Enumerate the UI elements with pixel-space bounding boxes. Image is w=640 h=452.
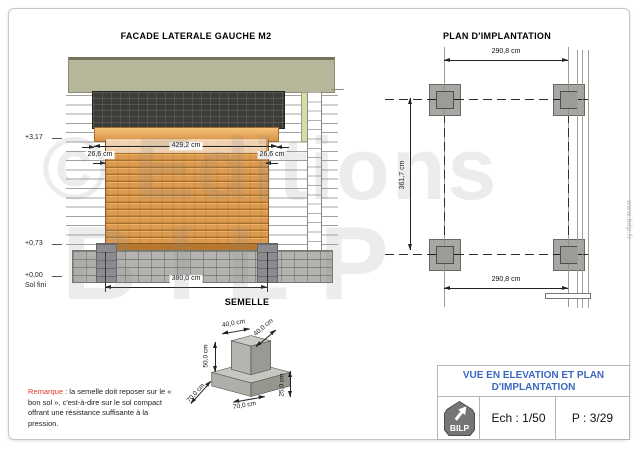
level-label-zero: +0,00	[25, 272, 43, 279]
dim-arrow-pier-height	[215, 342, 216, 372]
dim-label-overhang-right: 26,6 cm	[258, 151, 287, 159]
footing-pier-outline	[560, 91, 578, 109]
remark-label: Remarque	[28, 387, 63, 396]
footing-pad-top-left	[429, 84, 461, 116]
bilp-logo-text: BILP	[450, 423, 470, 433]
corner-post	[307, 92, 322, 250]
level-label-solfini: Sol fini	[25, 282, 46, 289]
wall-end-cap	[545, 293, 591, 299]
level-label-top: +3,17	[25, 134, 43, 141]
dim-label-plan-left: 361,7 cm	[399, 159, 407, 192]
level-tick	[52, 276, 62, 277]
titleblock-page-number: P : 3/29	[555, 396, 630, 440]
roof-panel	[68, 57, 335, 93]
footing-pier-outline	[436, 246, 454, 264]
titleblock-logo-cell: BILP	[437, 396, 482, 440]
dim-label-429: 429,2 cm	[170, 142, 203, 150]
existing-wall-line	[577, 50, 578, 308]
dim-label-pier-height: 50,0 cm	[203, 344, 210, 367]
dim-arrow	[277, 147, 289, 148]
dim-label-base-height: 25,0 cm	[279, 373, 286, 396]
footing-pier-outline	[436, 91, 454, 109]
dim-label-overhang-left: 26,6 cm	[86, 151, 115, 159]
dim-arrow-base-height	[290, 371, 291, 397]
titleblock-title-line2: D'IMPLANTATION	[492, 382, 576, 395]
titleblock-title-line1: VUE EN ELEVATION ET PLAN	[463, 370, 604, 383]
level-label-mid: +0,73	[25, 240, 43, 247]
dim-line-380	[105, 287, 267, 288]
level-tick	[52, 244, 62, 245]
footing-pier-outline	[560, 246, 578, 264]
drawing-sheet: FACADE LATERALE GAUCHE M2 429,2 cm 26,6 …	[0, 0, 640, 452]
dim-label-380: 380,0 cm	[170, 275, 203, 283]
titleblock-scale: Ech : 1/50	[479, 396, 558, 440]
centerline-vertical-dashed	[568, 114, 569, 239]
extension-line	[267, 252, 268, 292]
dim-arrow	[266, 163, 278, 164]
dim-line-plan-left	[410, 98, 411, 250]
shingle-band	[92, 91, 285, 129]
remark-note: Remarque : la semelle doit reposer sur l…	[28, 387, 180, 429]
semelle-title: SEMELLE	[197, 297, 297, 307]
level-tick	[52, 138, 62, 139]
dim-line-plan-top	[444, 60, 568, 61]
facade-title: FACADE LATERALE GAUCHE M2	[76, 31, 316, 41]
dim-label-plan-bottom: 290,8 cm	[490, 276, 523, 284]
centerline-vertical-dashed	[444, 114, 445, 239]
timber-wall	[105, 140, 269, 243]
plan-title: PLAN D'IMPLANTATION	[397, 31, 597, 41]
existing-wall-line	[588, 50, 589, 308]
footing-pad-bottom-left	[429, 239, 461, 271]
masonry-pier-left	[96, 243, 117, 283]
existing-wall-line	[582, 50, 583, 308]
watermark-website: www.bilp.fr	[625, 200, 632, 239]
dim-line-plan-bottom	[444, 288, 568, 289]
dim-arrow	[82, 147, 94, 148]
roof-edge-line	[331, 89, 344, 90]
dim-label-plan-top: 290,8 cm	[490, 48, 523, 56]
titleblock-title: VUE EN ELEVATION ET PLAN D'IMPLANTATION	[437, 365, 630, 399]
dim-arrow	[93, 163, 105, 164]
footing-pad-bottom-right	[553, 239, 585, 271]
bilp-logo: BILP	[444, 401, 475, 436]
footing-pad-top-right	[553, 84, 585, 116]
